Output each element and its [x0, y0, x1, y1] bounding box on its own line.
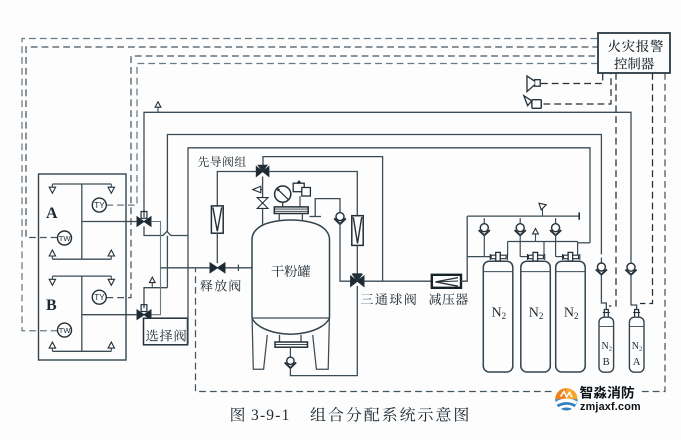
svg-text:TY: TY	[94, 201, 105, 210]
svg-text:B: B	[603, 357, 610, 368]
svg-text:TW: TW	[59, 234, 72, 243]
svg-text:TY: TY	[94, 293, 105, 302]
svg-text:3-9-1: 3-9-1	[251, 407, 291, 424]
svg-text:zmjaxf.com: zmjaxf.com	[580, 401, 641, 413]
svg-text:A: A	[46, 205, 58, 222]
svg-text:TW: TW	[59, 326, 72, 335]
svg-text:B: B	[46, 297, 57, 314]
svg-text:A: A	[633, 357, 641, 368]
